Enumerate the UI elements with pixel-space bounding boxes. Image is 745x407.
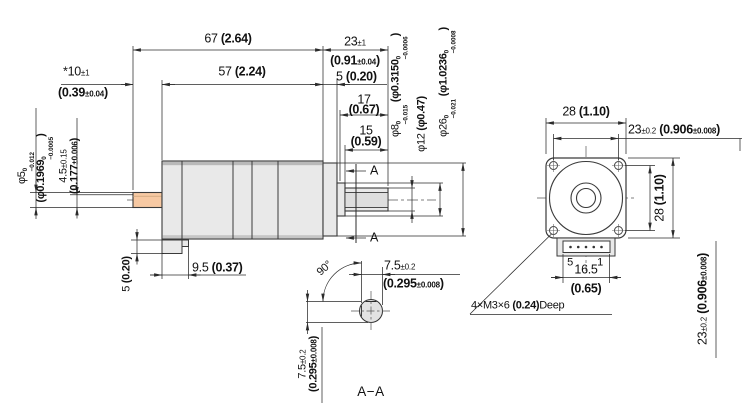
inch-close: )	[308, 336, 320, 339]
tolerance: ±0.2	[400, 263, 415, 272]
inch-value: (0.20)	[346, 70, 377, 84]
inch-value: (0.906±0.008)	[656, 123, 720, 137]
inch-close: )	[69, 138, 81, 141]
mm-value: 7.5	[384, 259, 400, 273]
inch-value: (0.37)	[212, 261, 243, 275]
dim-tab-height: 5 (0.20)	[121, 256, 132, 292]
dim-hole-spacing-h: 23±0.2 (0.906±0.008)	[628, 124, 720, 137]
mm-value: 5	[120, 283, 132, 292]
inch-close: )	[35, 133, 47, 136]
inch-open: (0.295	[308, 363, 320, 392]
thread-suffix: Deep	[539, 299, 564, 311]
inch-value: (φ0.3150	[389, 59, 401, 105]
pin-number: 1	[597, 256, 603, 268]
mm-value: 23	[628, 123, 641, 137]
inch-tolerance: ±0.008	[310, 339, 319, 362]
inch-tolerance-stack: 0−0.0005	[42, 137, 55, 160]
inch-value: (0.67)	[349, 103, 380, 117]
inch-value: (1.10)	[579, 105, 610, 119]
inch-value: (0.39±0.04)	[58, 86, 108, 100]
marker-letter: A	[370, 231, 378, 245]
mm-value: 16.5	[574, 263, 597, 277]
mm-value: 9.5	[192, 261, 212, 275]
inch-value: (0.906±0.008)	[696, 253, 710, 317]
connector-pin1-label: 1	[597, 257, 603, 268]
mm-value: 67	[204, 32, 220, 46]
dim-overall-length: 67 (2.64)	[204, 33, 251, 46]
dim-body-length: 57 (2.24)	[218, 66, 265, 79]
front-view-drawing	[537, 146, 636, 271]
dim-rear-shaft-length-inch: (0.39±0.04)	[58, 87, 108, 100]
dim-connector-width-inch: (0.65)	[571, 283, 602, 296]
inch-value: (2.24)	[235, 65, 266, 79]
thread-spec: 4×M3×6	[471, 299, 512, 311]
inch-open: (0.177	[69, 165, 81, 194]
inch-open: (0.906	[656, 123, 693, 137]
dim-front-height: 28 (1.10)	[654, 174, 667, 221]
inch-open: (0.906	[696, 280, 710, 317]
inch-value: (0.65)	[571, 282, 602, 296]
inch-value: (2.64)	[221, 32, 252, 46]
inch-close: )	[716, 123, 720, 137]
dim-tab-length: 9.5 (0.37)	[192, 262, 243, 275]
dim-front-width: 28 (1.10)	[562, 106, 609, 119]
tolerance-stack: 0−0.021	[444, 99, 457, 118]
mm-value: 23	[344, 35, 357, 49]
dim-shaft-length-mm: 23±1	[344, 36, 366, 49]
tolerance-stack: 0−0.015	[396, 105, 409, 124]
tolerance: ±0.2	[641, 127, 656, 136]
inch-value: (0.59)	[351, 135, 382, 149]
tol-lo: −0.015	[403, 105, 410, 124]
dim-shaft-length-inch: (0.91±0.04)	[330, 55, 380, 68]
dim-dia26-label: φ260−0.021 (φ1.02360−0.0008)	[438, 27, 457, 137]
inch-close: )	[696, 253, 710, 257]
inch-value: (0.91±0.04)	[330, 54, 380, 68]
tolerance: ±1	[357, 39, 365, 48]
inch-tolerance: ±0.008	[693, 127, 716, 136]
inch-open: (0.39	[58, 86, 85, 100]
side-view-drawing	[127, 161, 436, 254]
inch-line: (0.177±0.006)	[70, 138, 81, 194]
inch-line: (0.295±0.008)	[309, 336, 320, 392]
dim-rear-flat-label: 4.5±0.15 (0.177±0.006)	[59, 138, 82, 194]
inch-value: (φ0.47)	[415, 96, 427, 131]
dim-section-flat-h-inch: (0.295±0.008)	[383, 278, 444, 291]
tol-lo: −0.0006	[403, 36, 410, 59]
inch-open: (0.295	[383, 277, 417, 291]
inch-tolerance: ±0.04	[357, 58, 376, 67]
pin-number: 5	[567, 256, 573, 268]
inch-value: (0.24)	[512, 299, 539, 311]
mm-value: φ8	[389, 124, 401, 137]
section-title-text: A−A	[357, 384, 384, 399]
inch-tolerance: ±0.006	[71, 141, 80, 164]
mm-value: *10	[63, 65, 81, 79]
dim-pilot-length: 5 (0.20)	[336, 71, 377, 84]
thread-note: 4×M3×6 (0.24)Deep	[471, 300, 564, 311]
dim-dia8-label: φ80−0.015 (φ0.31500−0.0006)	[390, 33, 409, 137]
dim-section-flat-v: 7.5±0.2 (0.295±0.008)	[298, 336, 321, 392]
section-marker-bottom: A	[370, 232, 378, 245]
inch-value: (0.20)	[120, 256, 132, 283]
inch-close: )	[376, 54, 380, 68]
tol-lo: −0.0005	[49, 137, 56, 160]
technical-drawing-stage: 67 (2.64) 23±1 (0.91±0.04) 57 (2.24) *10…	[0, 0, 745, 407]
marker-letter: A	[370, 164, 378, 178]
tolerance: ±1	[81, 69, 89, 78]
inch-open: (φ0.1969	[35, 160, 47, 203]
mm-line: φ50−0.012	[17, 133, 36, 202]
dim-rear-shaft-length-mm: *10±1	[63, 66, 89, 79]
mm-value: 28	[562, 105, 578, 119]
dim-dia12-label: φ12 (φ0.47)	[416, 96, 427, 152]
inch-line: (φ0.19690−0.0005)	[36, 133, 55, 202]
inch-tolerance-stack: 0−0.0006	[396, 36, 409, 59]
mm-value: 28	[653, 205, 667, 221]
inch-open: (0.91	[330, 54, 357, 68]
inch-tolerance: ±0.008	[417, 281, 440, 290]
mm-value: φ5	[16, 171, 28, 184]
tolerance: ±0.2	[700, 317, 709, 332]
mm-value: 23	[696, 332, 710, 345]
mm-value: 57	[218, 65, 234, 79]
tolerance: ±0.15	[60, 149, 69, 168]
inch-close: )	[440, 277, 444, 291]
mm-value: 4.5	[58, 168, 70, 182]
mm-value: 7.5	[297, 364, 309, 378]
inch-close: )	[389, 33, 401, 36]
dim-shaft-step-inch: (0.67)	[349, 104, 380, 117]
mm-value: φ12	[415, 131, 427, 152]
mm-value: φ26	[437, 118, 449, 136]
inch-tolerance: ±0.008	[700, 257, 709, 280]
tol-lo: −0.021	[451, 99, 458, 118]
inch-tolerance-stack: 0−0.0008	[444, 30, 457, 53]
dim-rear-dia5-label: φ50−0.012 (φ0.19690−0.0005)	[17, 133, 55, 202]
inch-close: )	[104, 86, 108, 100]
tolerance: ±0.2	[299, 349, 308, 364]
dim-section-flat-h-mm: 7.5±0.2	[384, 260, 415, 273]
mm-value: 5	[336, 70, 346, 84]
inch-close: )	[437, 27, 449, 30]
section-marker-top: A	[370, 165, 378, 178]
dim-hole-spacing-v: 23±0.2 (0.906±0.008)	[697, 253, 710, 345]
dim-connector-width-mm: 16.5	[574, 264, 597, 277]
inch-value: (φ1.0236	[437, 53, 449, 99]
section-title: A−A	[357, 385, 384, 399]
dim-flat-length-inch: (0.59)	[351, 136, 382, 149]
inch-value: (1.10)	[653, 174, 667, 205]
connector-pin5-label: 5	[567, 257, 573, 268]
inch-value: (0.295±0.008)	[383, 277, 444, 291]
inch-tolerance: ±0.04	[85, 90, 104, 99]
tol-lo: −0.0008	[451, 30, 458, 53]
